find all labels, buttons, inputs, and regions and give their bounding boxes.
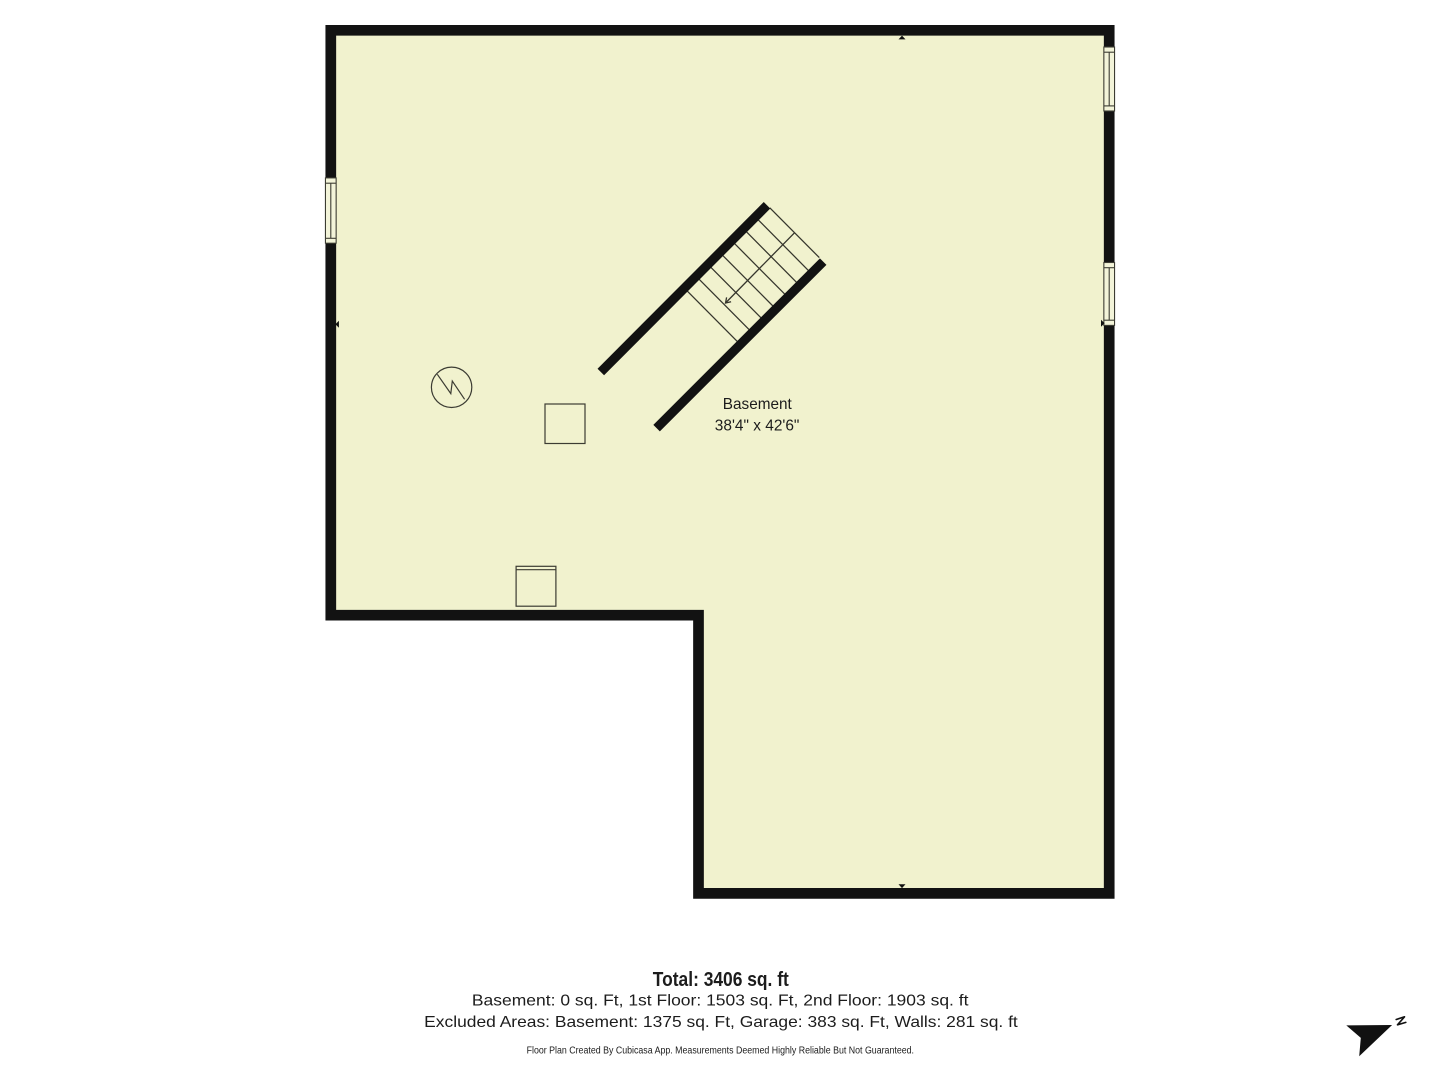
svg-text:Floor Plan Created By Cubicasa: Floor Plan Created By Cubicasa App. Meas…	[527, 1046, 914, 1057]
svg-text:Excluded Areas: Basement: 1375: Excluded Areas: Basement: 1375 sq. Ft, G…	[424, 1014, 1018, 1031]
svg-text:Basement: 0 sq. Ft, 1st Floor:: Basement: 0 sq. Ft, 1st Floor: 1503 sq. …	[472, 993, 969, 1010]
svg-text:Total: 3406 sq. ft: Total: 3406 sq. ft	[653, 968, 789, 991]
svg-text:Basement: Basement	[723, 396, 793, 413]
svg-text:38'4" x 42'6": 38'4" x 42'6"	[715, 417, 800, 434]
